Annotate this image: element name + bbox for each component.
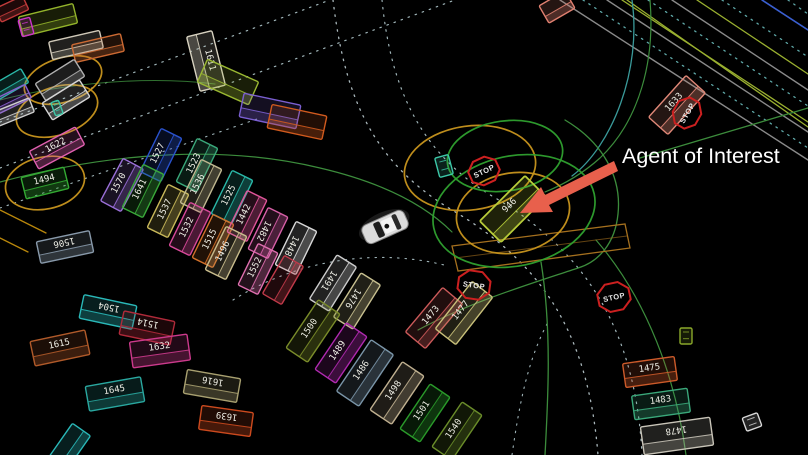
agent-box: [50, 423, 91, 455]
agent-box: 1639: [199, 405, 254, 436]
agent-box: 1478: [640, 417, 713, 454]
agent-of-interest-label: Agent of Interest: [622, 144, 780, 168]
agent-box: 1616: [183, 369, 240, 402]
annotation-group: Agent of Interest: [520, 144, 780, 213]
agent-box: [539, 0, 575, 23]
agent-box: 1645: [85, 377, 144, 411]
perception-scene-canvas: 1622149415061611157015271523164115371536…: [0, 0, 808, 455]
agent-box: 1483: [632, 388, 691, 420]
agent-box: 1615: [30, 330, 90, 366]
agent-box: [267, 104, 327, 139]
agent-box: [742, 413, 762, 432]
stop-sign-label: STOP: [602, 291, 626, 304]
agent-box: 1494: [21, 167, 69, 199]
stop-sign: STOP: [596, 280, 633, 314]
agent-box: [435, 155, 454, 178]
agent-box: 1475: [623, 356, 678, 387]
agent-box: [680, 328, 692, 344]
scene-viewport: 1622149415061611157015271523164115371536…: [0, 0, 808, 455]
agent-box: 1506: [36, 231, 93, 264]
ego-vehicle: [354, 202, 414, 248]
